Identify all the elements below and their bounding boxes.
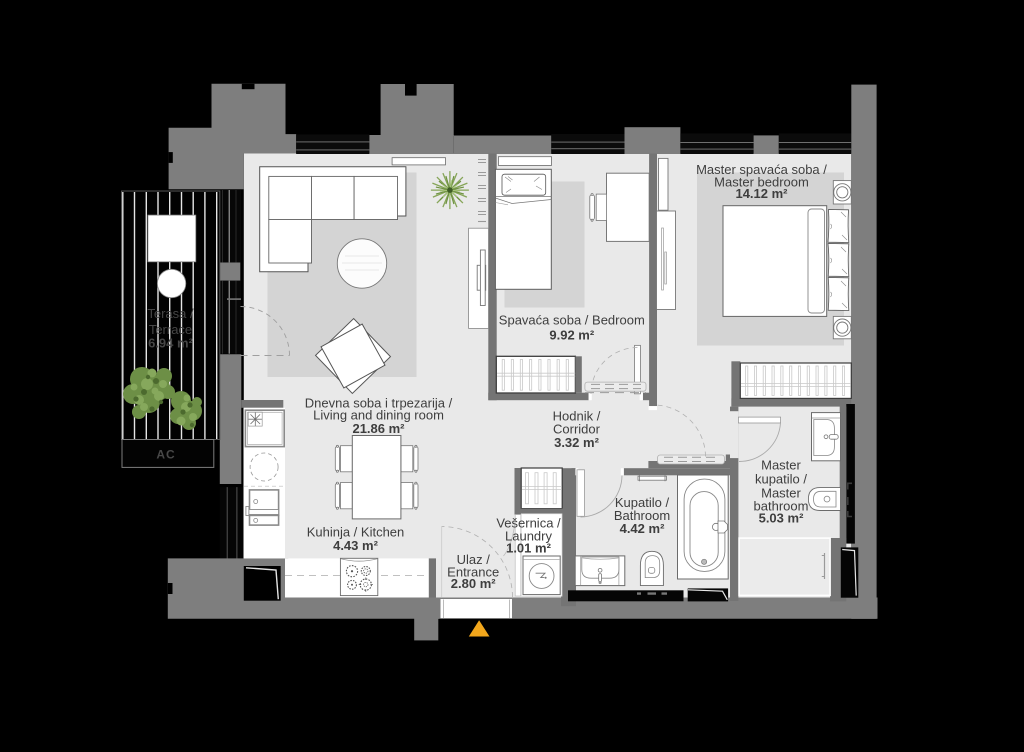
svg-text:14.12 m²: 14.12 m² [735, 186, 788, 201]
svg-text:AC: AC [156, 448, 175, 462]
svg-text:3.32 m²: 3.32 m² [554, 435, 599, 450]
svg-text:9.92 m²: 9.92 m² [549, 328, 594, 343]
svg-text:kupatilo /: kupatilo / [755, 472, 807, 487]
svg-text:6.94 m²: 6.94 m² [148, 336, 193, 351]
svg-text:Master: Master [761, 458, 801, 473]
svg-text:4.43 m²: 4.43 m² [333, 538, 378, 553]
svg-text:2.80 m²: 2.80 m² [451, 576, 496, 591]
svg-text:1.01 m²: 1.01 m² [506, 540, 551, 555]
svg-text:4.42 m²: 4.42 m² [620, 521, 665, 536]
svg-text:Spavaća soba / Bedroom: Spavaća soba / Bedroom [499, 313, 645, 328]
svg-text:Terasa /: Terasa / [147, 306, 194, 321]
svg-text:5.03 m²: 5.03 m² [759, 511, 804, 526]
svg-text:21.86 m²: 21.86 m² [352, 421, 405, 436]
